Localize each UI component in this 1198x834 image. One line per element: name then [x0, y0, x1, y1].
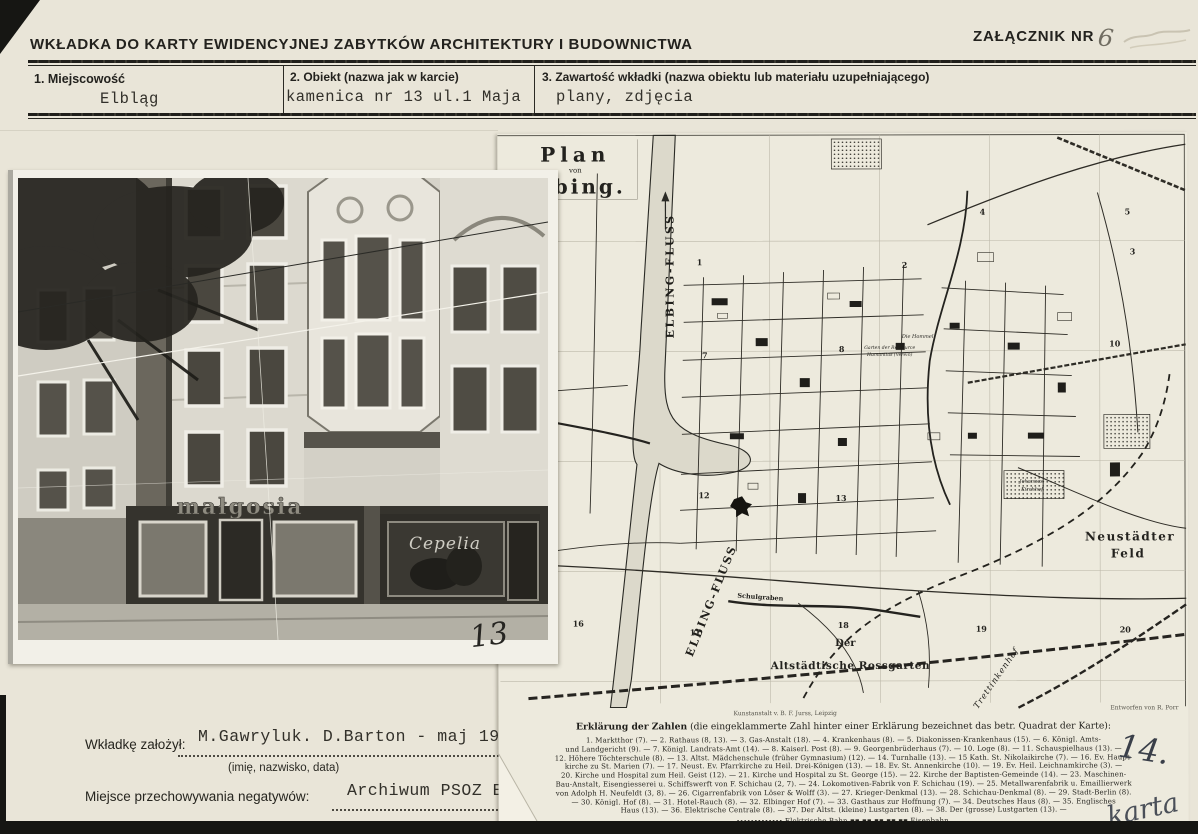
svg-text:Altstädtische Rossgarten: Altstädtische Rossgarten [770, 660, 930, 672]
map-credit-left: Kunstanstalt v. B. F. Jurss, Leipzig [733, 710, 836, 717]
founder-hint: (imię, nazwisko, data) [228, 762, 339, 774]
header-rule-thin [28, 65, 1196, 66]
right-facade [440, 178, 548, 518]
legend-heading: Erklärung der Zahlen (die eingeklammerte… [512, 720, 1174, 732]
field-obiekt-label: 2. Obiekt (nazwa jak w karcie) [290, 70, 459, 84]
svg-text:7: 7 [702, 350, 708, 360]
map-credit-right: Entworfen von R. Porr [1110, 704, 1178, 711]
shop-sign-left: małgosia [176, 494, 303, 520]
shopfront: małgosia Cepelia [126, 494, 548, 604]
svg-text:Neustädter: Neustädter [1085, 529, 1175, 543]
svg-text:12: 12 [698, 490, 709, 500]
map-chaussee-roads [967, 137, 1186, 382]
legend-heading-bold: Erklärung der Zahlen [576, 721, 687, 732]
shop-door [220, 520, 262, 600]
field-separator-2 [534, 66, 535, 113]
field-rule-thick [28, 113, 1196, 116]
shop-window-1 [140, 522, 206, 596]
svg-text:5: 5 [1125, 206, 1131, 216]
svg-text:Kirchhof: Kirchhof [1020, 487, 1044, 493]
svg-text:Die Hommel: Die Hommel [901, 334, 934, 340]
field-zawartosc-label: 3. Zawartość wkładki (nazwa obiektu lub … [542, 70, 929, 84]
svg-text:1: 1 [697, 257, 703, 267]
city-map-drawing: Plan von Elbing. ELBING-FLUSS ELBING-FLU… [497, 132, 1188, 709]
map-quadrant-grid [499, 134, 1185, 703]
map-sheet: Plan von Elbing. ELBING-FLUSS ELBING-FLU… [497, 132, 1188, 834]
field-zawartosc-value: plany, zdjęcia [556, 88, 693, 106]
founder-value: M.Gawryluk. D.Barton - maj 1993 [198, 727, 520, 746]
svg-text:17: 17 [690, 627, 701, 637]
scan-corner-topleft [0, 0, 50, 60]
scan-edge-left [0, 695, 6, 825]
pencil-scribble [1120, 22, 1195, 52]
attachment-number-handwritten: 6 [1096, 23, 1115, 53]
map-streams [517, 191, 968, 618]
founder-label: Wkładkę założył: [85, 737, 186, 752]
field-separator-1 [283, 66, 284, 113]
photo-left-edge-shadow [8, 170, 13, 664]
svg-text:Plan: Plan [540, 142, 610, 166]
legend-heading-rest: (die eingeklammerte Zahl hinter einer Er… [687, 720, 1111, 732]
svg-text:von: von [568, 167, 582, 175]
shop-window-2 [274, 522, 356, 596]
building-photo: małgosia Cepelia [8, 170, 558, 664]
legend-line: Haus (13). — 36. Elektrische Centrale (8… [513, 806, 1175, 816]
photo-handwritten-number: 13 [468, 616, 510, 655]
negatives-dotted-line [332, 809, 506, 811]
svg-text:13: 13 [835, 493, 847, 503]
svg-text:16: 16 [573, 619, 585, 629]
archive-card: WKŁADKA DO KARTY EWIDENCYJNEJ ZABYTKÓW A… [0, 0, 1198, 834]
svg-text:18: 18 [838, 620, 850, 630]
svg-text:Garten der Ressource: Garten der Ressource [864, 345, 915, 351]
river-elbing [609, 135, 751, 707]
svg-text:10: 10 [1109, 338, 1121, 348]
svg-text:Johannes-: Johannes- [1019, 479, 1045, 485]
river-label-upper: ELBING-FLUSS [663, 213, 676, 338]
attachment-number-label: ZAŁĄCZNIK NR [973, 28, 1094, 45]
svg-text:8: 8 [839, 344, 845, 354]
scan-edge-bottom [0, 821, 1198, 834]
shop-sign-cepelia: Cepelia [409, 534, 481, 554]
map-legend: Erklärung der Zahlen (die eingeklammerte… [512, 720, 1174, 826]
field-rule-thin [28, 118, 1196, 119]
negatives-label: Miejsce przechowywania negatywów: [85, 789, 309, 804]
crease-line [0, 130, 498, 131]
field-obiekt-value: kamenica nr 13 ul.1 Maja [286, 88, 521, 106]
svg-text:19: 19 [976, 624, 988, 634]
svg-text:Der: Der [835, 638, 856, 649]
map-handwritten-number: 14. [1116, 727, 1172, 772]
svg-text:Feld: Feld [1111, 546, 1145, 560]
building-photo-image: małgosia Cepelia [8, 170, 558, 664]
header-rule-thick [28, 60, 1196, 63]
page-title: WKŁADKA DO KARTY EWIDENCYJNEJ ZABYTKÓW A… [30, 36, 693, 53]
founder-dotted-line [178, 755, 506, 757]
svg-text:Schulgraben: Schulgraben [737, 592, 784, 603]
field-miejscowosc-value: Elbląg [100, 90, 159, 108]
svg-text:Humanitas (Verein): Humanitas (Verein) [866, 351, 913, 358]
map-building-outlines [718, 253, 1072, 490]
svg-text:2: 2 [902, 260, 908, 270]
svg-text:20: 20 [1120, 624, 1132, 634]
svg-text:3: 3 [1130, 246, 1136, 256]
map-street-network [517, 144, 1186, 693]
field-miejscowosc-label: 1. Miejscowość [34, 72, 125, 86]
bay-window [304, 176, 444, 506]
map-district-labels: Neustädter Feld Der Altstädtische Rossga… [737, 333, 1176, 709]
svg-text:4: 4 [980, 207, 986, 217]
